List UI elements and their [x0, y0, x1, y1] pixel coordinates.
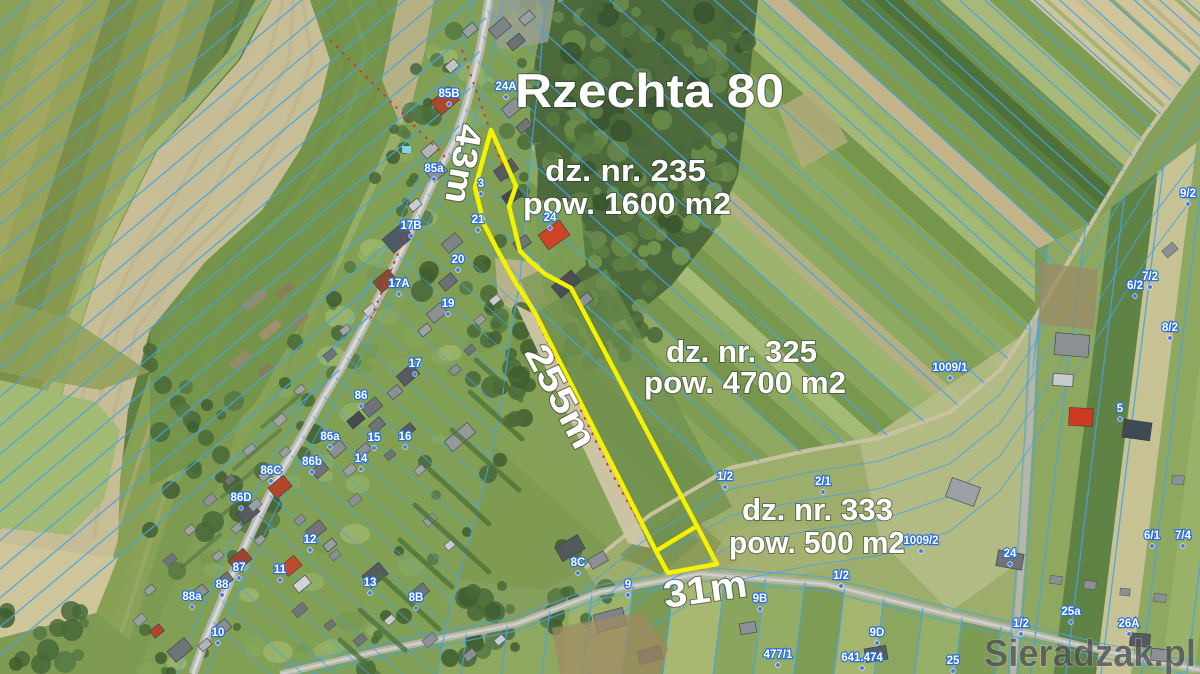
svg-text:8/2: 8/2	[1162, 322, 1178, 334]
svg-text:17A: 17A	[388, 278, 409, 290]
svg-text:17: 17	[409, 358, 422, 370]
svg-text:6/2: 6/2	[1127, 280, 1143, 292]
svg-text:477/1: 477/1	[764, 649, 793, 661]
svg-text:88a: 88a	[182, 591, 202, 603]
svg-text:1/2: 1/2	[717, 471, 733, 483]
svg-text:7/4: 7/4	[1175, 530, 1192, 542]
svg-text:pow. 500 m2: pow. 500 m2	[729, 525, 905, 560]
svg-text:16: 16	[399, 431, 412, 443]
svg-text:1/2: 1/2	[1013, 618, 1029, 630]
svg-text:11: 11	[274, 564, 287, 576]
svg-text:85B: 85B	[438, 88, 459, 100]
svg-text:5: 5	[1117, 403, 1124, 415]
svg-text:25: 25	[947, 655, 960, 667]
svg-text:1/2: 1/2	[833, 570, 849, 582]
svg-text:87: 87	[233, 562, 246, 574]
svg-text:19: 19	[442, 298, 455, 310]
svg-text:9D: 9D	[870, 627, 885, 639]
svg-text:7/2: 7/2	[1142, 271, 1158, 283]
svg-text:dz. nr. 325: dz. nr. 325	[666, 334, 817, 369]
svg-text:14: 14	[355, 453, 368, 465]
svg-text:9: 9	[625, 579, 631, 591]
svg-text:26A: 26A	[1118, 618, 1139, 630]
svg-text:2/1: 2/1	[815, 476, 832, 488]
svg-text:9B: 9B	[753, 593, 768, 605]
svg-text:86b: 86b	[302, 456, 322, 468]
svg-text:24: 24	[544, 212, 557, 224]
svg-text:86: 86	[355, 390, 368, 402]
svg-text:6/1: 6/1	[1144, 530, 1161, 542]
svg-text:20: 20	[452, 254, 465, 266]
svg-text:25a: 25a	[1061, 606, 1081, 618]
svg-text:3: 3	[478, 178, 484, 190]
svg-text:9/2: 9/2	[1180, 188, 1196, 200]
svg-text:17B: 17B	[400, 220, 421, 232]
svg-text:86C: 86C	[260, 465, 281, 477]
svg-text:21: 21	[472, 214, 485, 226]
svg-text:Rzechta 80: Rzechta 80	[515, 64, 784, 117]
svg-text:8B: 8B	[409, 592, 424, 604]
svg-text:10: 10	[212, 627, 225, 639]
svg-text:88: 88	[216, 579, 229, 591]
svg-text:86D: 86D	[230, 492, 251, 504]
svg-text:pow. 4700 m2: pow. 4700 m2	[644, 365, 846, 400]
svg-text:8C: 8C	[571, 557, 586, 569]
svg-text:dz. nr. 235: dz. nr. 235	[545, 153, 706, 188]
svg-text:641.474: 641.474	[841, 652, 883, 664]
svg-text:24: 24	[1004, 548, 1017, 560]
svg-text:13: 13	[364, 577, 377, 589]
svg-text:85a: 85a	[424, 163, 444, 175]
svg-text:12: 12	[304, 534, 317, 546]
svg-text:15: 15	[368, 432, 381, 444]
svg-text:1009/1: 1009/1	[932, 362, 968, 374]
svg-text:24A: 24A	[495, 81, 516, 93]
svg-text:1009/2: 1009/2	[903, 535, 938, 547]
svg-text:dz. nr. 333: dz. nr. 333	[742, 492, 893, 527]
svg-text:86a: 86a	[320, 431, 340, 443]
svg-text:Sieradzak.pl: Sieradzak.pl	[984, 633, 1196, 674]
